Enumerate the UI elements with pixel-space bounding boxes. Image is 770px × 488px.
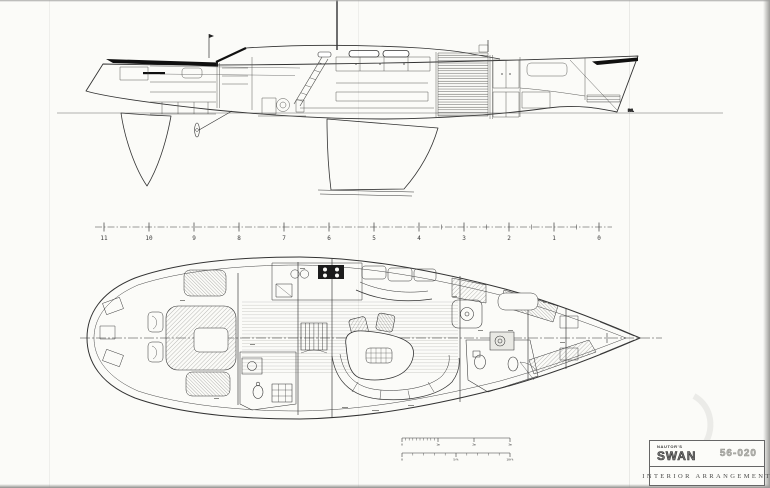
chair	[148, 312, 163, 332]
station-label: 10	[145, 235, 153, 242]
station-label: 4	[417, 235, 421, 242]
station-label: 1	[552, 235, 556, 242]
stern-accent	[143, 72, 165, 74]
armchair	[375, 313, 395, 333]
station-labels: 11 10 9 8 7 6 5 4 3 2 1 0	[100, 235, 601, 242]
scale-label: 10ft	[506, 458, 513, 462]
stern-cove-stripe	[106, 59, 218, 67]
forward-cabin	[452, 278, 634, 374]
basin	[508, 357, 518, 371]
saloon	[332, 266, 459, 400]
cockpit-lines	[150, 66, 300, 76]
keel	[327, 119, 438, 190]
drawing-canvas: DWL 11 10 9 8 7 6 5 4 3 2 1 0	[0, 0, 770, 488]
forward-head	[466, 332, 538, 392]
station-label: 9	[192, 235, 196, 242]
station-ruler: 11 10 9 8 7 6 5 4 3 2 1 0	[95, 223, 612, 243]
paper-crease	[629, 0, 630, 488]
antenna-flag	[209, 34, 214, 38]
station-label: 5	[372, 235, 376, 242]
station-label: 0	[597, 235, 601, 242]
aft-cabin	[100, 270, 236, 396]
scale-bar-meters: 0 1m 2m 3m	[401, 438, 512, 447]
pilot-berth	[452, 278, 486, 303]
scale-label: 1m	[436, 443, 440, 447]
station-label: 8	[237, 235, 241, 242]
scan-edge-right	[763, 0, 770, 488]
rudder	[121, 113, 171, 186]
aft-seat	[184, 270, 226, 296]
scale-label: 5ft	[453, 458, 459, 462]
hull-profile-outline	[86, 56, 638, 119]
station-label: 6	[327, 235, 331, 242]
aft-head	[240, 352, 296, 410]
station-label: 3	[462, 235, 466, 242]
scale-label: 3m	[508, 443, 512, 447]
scan-edge-top	[0, 0, 770, 2]
shower	[272, 384, 292, 402]
scale-label: 0	[401, 443, 403, 447]
scale-bar-feet: 0 5ft 10ft	[401, 453, 514, 462]
chair	[148, 342, 163, 362]
bow-accent	[592, 58, 638, 66]
scale-bars: 0 1m 2m 3m 0 5ft 10ft	[401, 438, 514, 462]
scanned-drawing-sheet: DWL 11 10 9 8 7 6 5 4 3 2 1 0	[0, 0, 770, 488]
title-block-header: NAUTOR'S SWAN 56-020	[650, 441, 764, 467]
aft-seat	[186, 372, 230, 396]
cabin-window	[383, 51, 409, 58]
model-number: 56-020	[720, 448, 757, 459]
windshield	[216, 48, 246, 62]
station-label: 7	[282, 235, 286, 242]
drawing-title: INTERIOR ARRANGEMENT	[642, 473, 770, 480]
scale-label: 0	[401, 458, 403, 462]
scale-label: 2m	[472, 443, 476, 447]
toilet	[253, 386, 263, 399]
brand-logo: NAUTOR'S SWAN	[657, 445, 696, 462]
brand-name-large: SWAN	[657, 450, 696, 462]
stove	[318, 265, 344, 279]
keel-foot	[318, 190, 414, 196]
cabin-window	[318, 52, 331, 57]
title-block: NAUTOR'S SWAN 56-020 INTERIOR ARRANGEMEN…	[649, 440, 765, 486]
galley	[272, 263, 362, 300]
paper-crease	[49, 0, 50, 488]
station-label: 2	[507, 235, 511, 242]
cabin-window	[349, 51, 379, 58]
galley-sink	[300, 270, 308, 278]
paper-crease	[358, 0, 359, 488]
station-label: 11	[100, 235, 108, 242]
interior-plan-view	[80, 257, 662, 419]
propeller	[195, 123, 200, 137]
profile-view: DWL	[57, 0, 723, 196]
